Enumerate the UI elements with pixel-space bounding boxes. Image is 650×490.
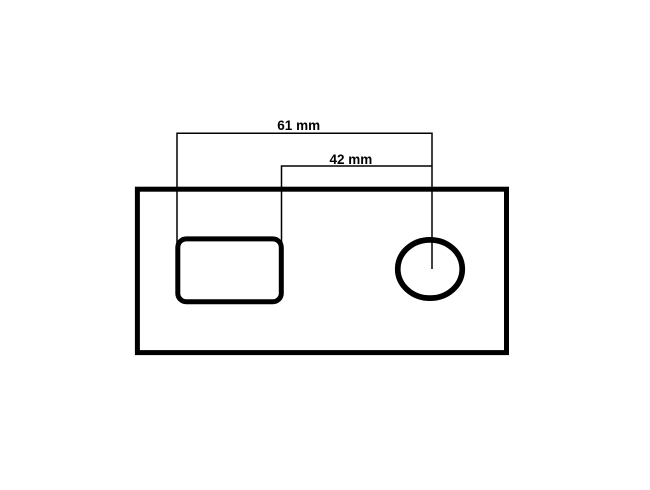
svg-text:42 mm: 42 mm [330, 152, 373, 167]
svg-text:61 mm: 61 mm [277, 118, 320, 133]
